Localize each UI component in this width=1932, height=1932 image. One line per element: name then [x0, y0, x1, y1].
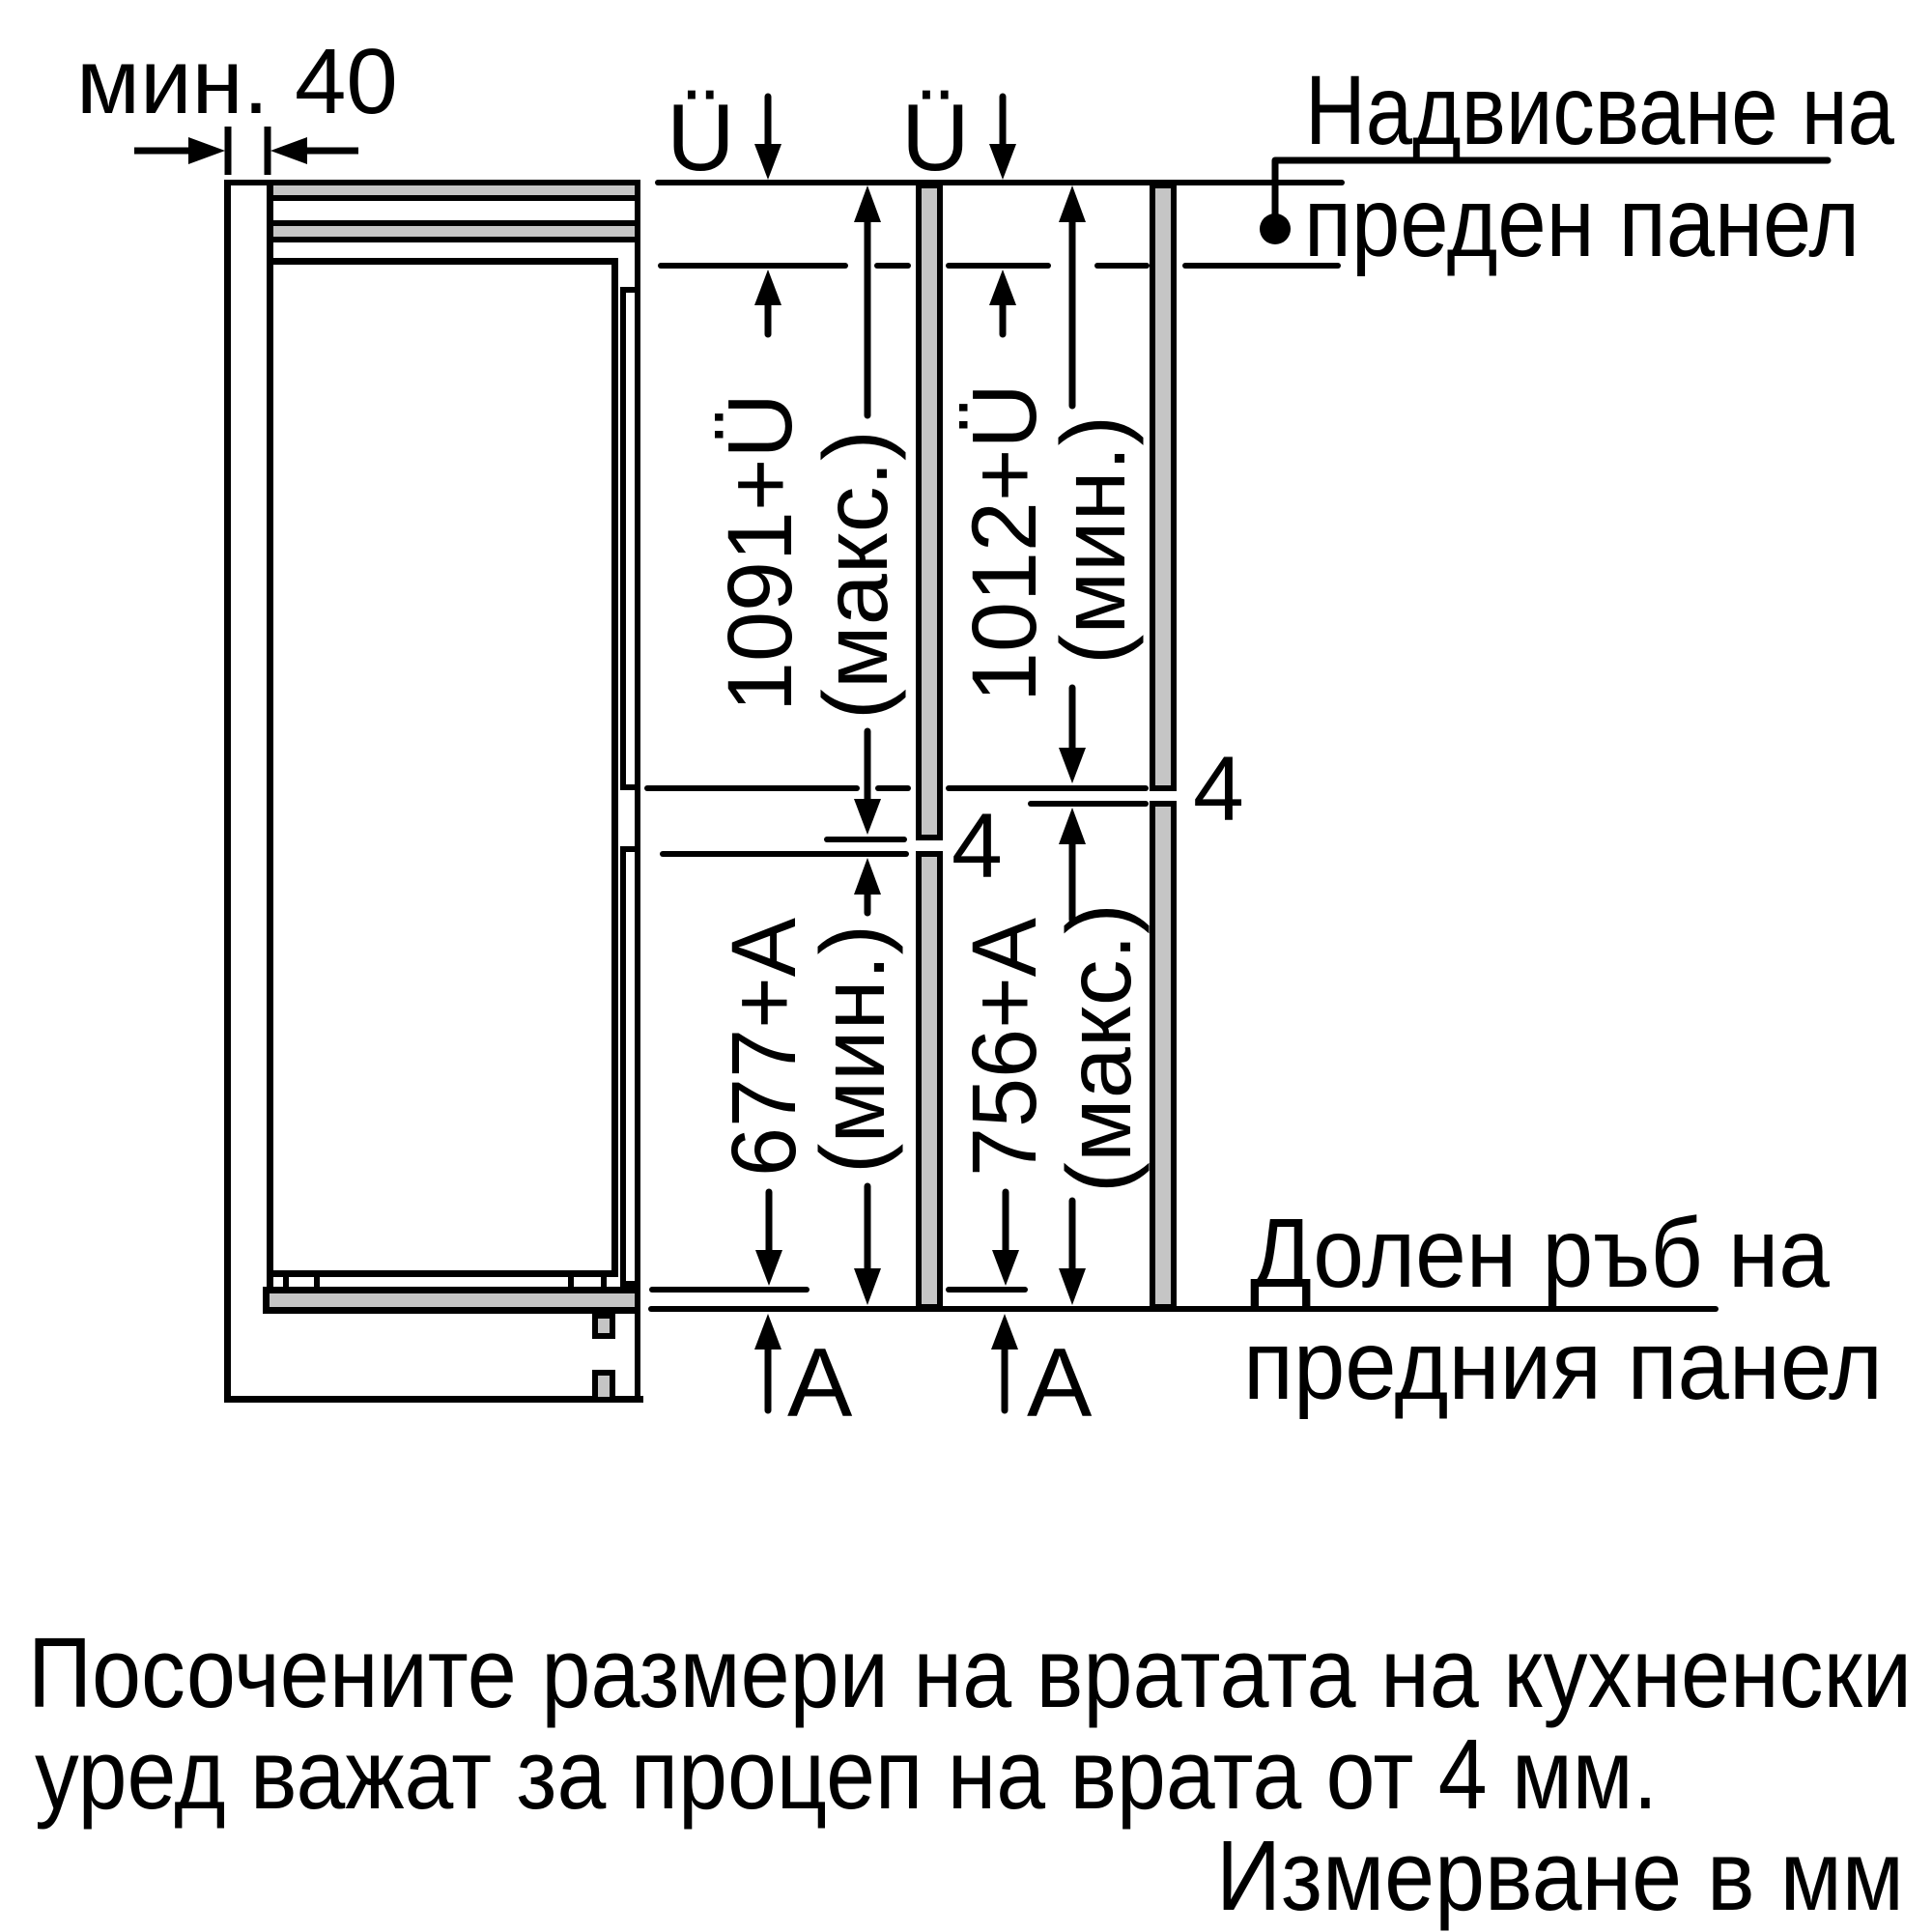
svg-text:1091+Ü: 1091+Ü: [709, 393, 811, 712]
svg-text:4: 4: [1193, 738, 1244, 840]
svg-text:A: A: [1027, 1329, 1093, 1437]
svg-text:(макс.): (макс.): [1048, 903, 1151, 1193]
svg-text:предния панел: предния панел: [1243, 1310, 1883, 1420]
svg-text:уред важат за процеп на врата: уред важат за процеп на врата от 4 мм.: [35, 1719, 1658, 1830]
svg-text:(мин.): (мин.): [802, 924, 904, 1174]
svg-text:A: A: [787, 1329, 853, 1437]
svg-text:1012+Ü: 1012+Ü: [953, 384, 1056, 702]
svg-text:(макс.): (макс.): [805, 430, 907, 720]
svg-text:(мин.): (мин.): [1042, 415, 1145, 665]
svg-text:Долен ръб на: Долен ръб на: [1250, 1198, 1830, 1308]
svg-text:4: 4: [952, 795, 1003, 897]
svg-text:Посочените размери на вратата: Посочените размери на вратата на кухненс…: [28, 1617, 1912, 1728]
svg-text:Измерване в мм: Измерване в мм: [1216, 1820, 1904, 1931]
svg-text:Ü: Ü: [901, 84, 970, 190]
svg-text:756+A: 756+A: [953, 917, 1056, 1177]
svg-text:мин. 40: мин. 40: [76, 30, 398, 133]
svg-text:Надвисване на: Надвисване на: [1305, 55, 1894, 165]
svg-text:преден панел: преден панел: [1304, 167, 1860, 277]
svg-text:677+A: 677+A: [713, 917, 815, 1177]
svg-text:Ü: Ü: [667, 84, 735, 190]
